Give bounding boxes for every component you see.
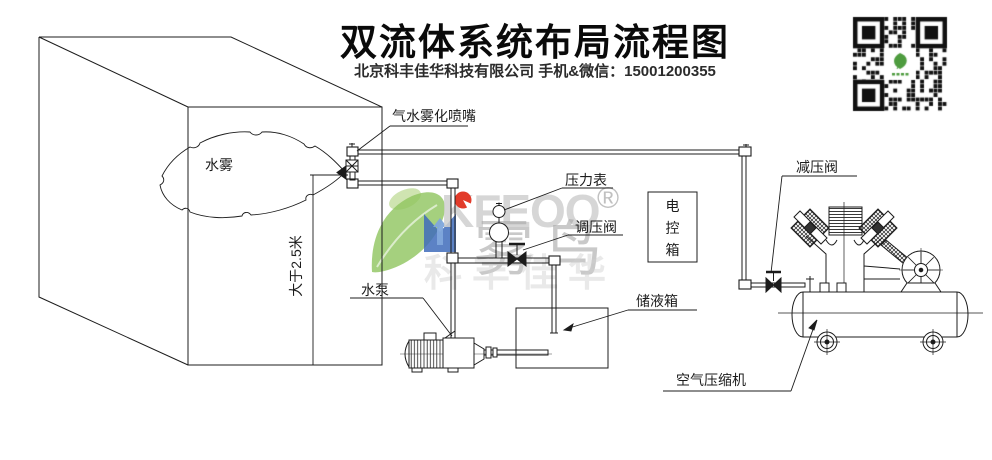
diagram-page: KFEOO 雾鸟 ® 科丰佳华: [0, 0, 992, 460]
label-water-mist: 水雾: [205, 157, 233, 173]
wheel-icon: [814, 329, 840, 355]
qr-code: [851, 15, 949, 113]
company-contact-line: 北京科丰佳华科技有限公司 手机&微信：15001200355: [300, 60, 770, 81]
air-pipe: [353, 144, 814, 292]
label-air-compressor: 空气压缩机: [676, 372, 746, 388]
pipe-fittings: [447, 147, 751, 289]
label-control-box: 电控箱: [648, 194, 697, 261]
room-outline: [39, 37, 382, 365]
label-pressure-gauge: 压力表: [565, 172, 607, 188]
dimension-line: [310, 175, 348, 365]
label-storage-tank: 储液箱: [636, 293, 678, 309]
nozzle-symbol: [337, 143, 358, 188]
reducing-valve-symbol: [766, 272, 781, 292]
water-pump-symbol: [400, 331, 552, 372]
label-water-pump: 水泵: [361, 282, 389, 298]
label-nozzle: 气水雾化喷嘴: [392, 108, 476, 124]
control-box-text: 电控箱: [664, 195, 682, 261]
label-reducing-valve: 减压阀: [796, 159, 838, 175]
pressure-gauge-symbol: [490, 203, 509, 259]
wheel-icon: [920, 329, 946, 355]
diagram-title: 双流体系统布局流程图: [300, 12, 770, 66]
label-regulating-valve: 调压阀: [575, 219, 617, 235]
storage-tank-symbol: [516, 308, 608, 368]
label-dimension: 大于2.5米: [286, 224, 306, 308]
